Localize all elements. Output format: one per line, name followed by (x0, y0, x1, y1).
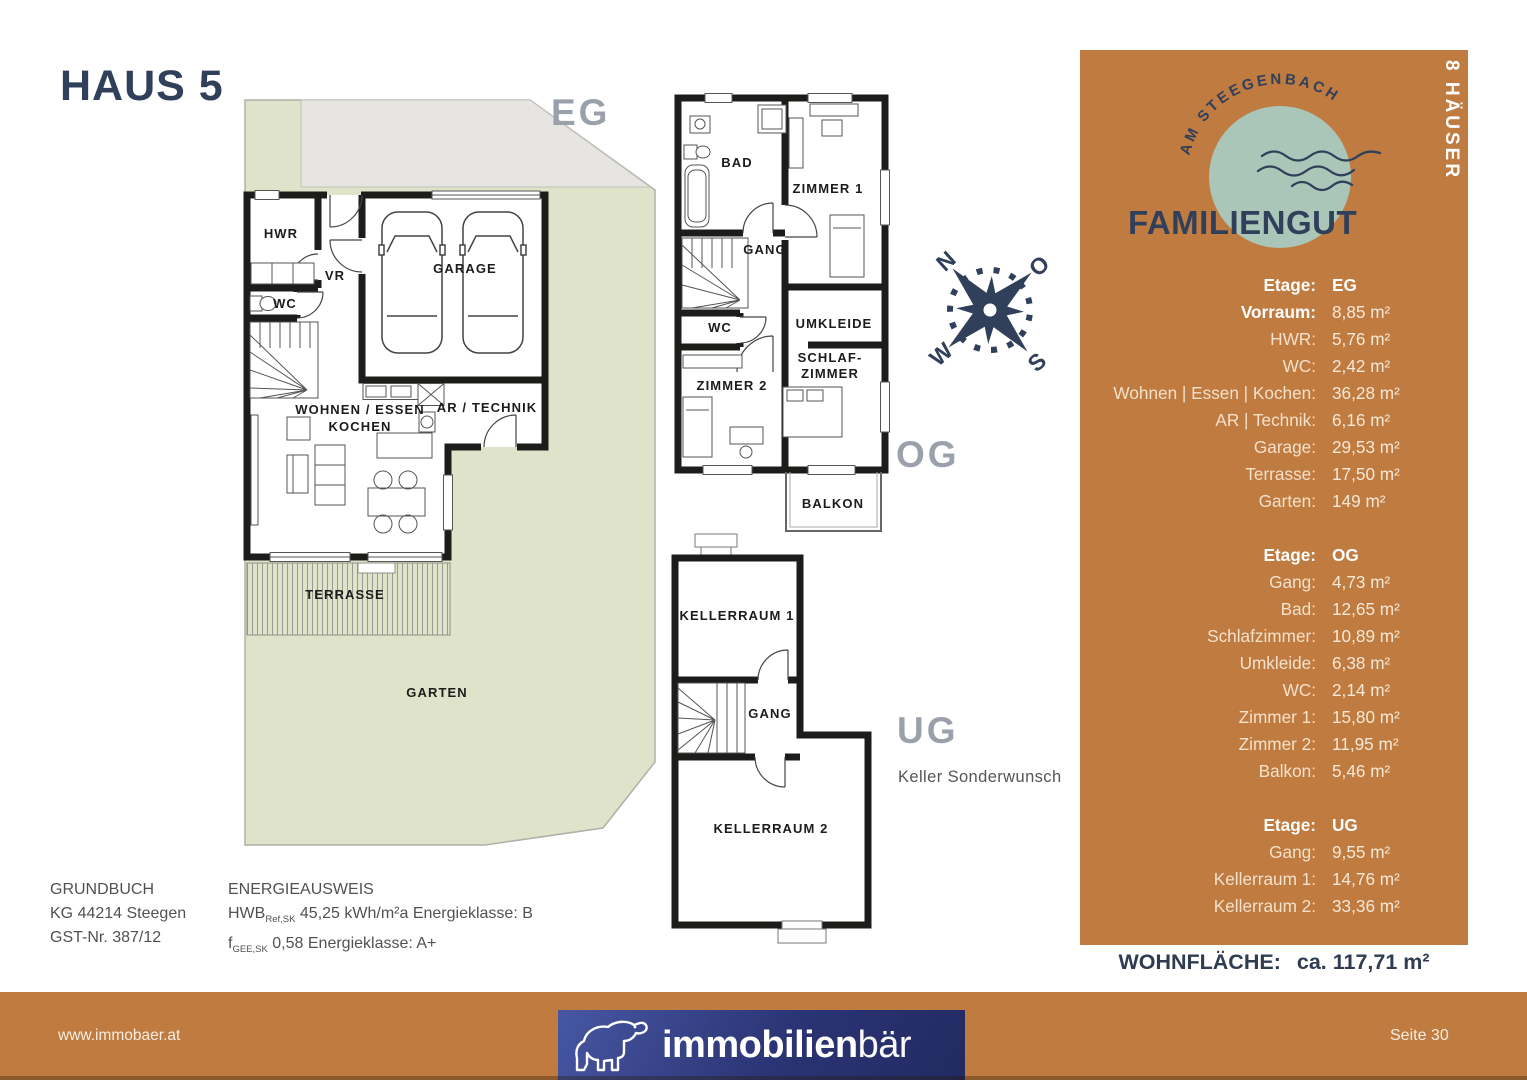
area-value: 5,76 m² (1332, 329, 1390, 350)
area-value: 4,73 m² (1332, 572, 1390, 593)
area-label: Balkon: (1080, 761, 1316, 782)
room-label-zimmer1: ZIMMER 1 (793, 181, 864, 196)
fgee-sub: GEE,SK (232, 944, 267, 955)
hwb-label: HWB (228, 905, 265, 922)
area-label: Bad: (1080, 599, 1316, 620)
immobilienbaer-logo: immobilienbär (558, 1010, 965, 1080)
hwb-sub: Ref,SK (265, 914, 295, 925)
etage-value: EG (1332, 275, 1357, 296)
area-label: Gang: (1080, 572, 1316, 593)
area-value: 36,28 m² (1332, 383, 1400, 404)
grundbuch-line2: GST-Nr. 387/12 (50, 926, 186, 950)
etage-label: Etage: (1080, 545, 1316, 566)
area-label: Garten: (1080, 491, 1316, 512)
etage-value: UG (1332, 815, 1358, 836)
ug-floor-plan: KELLERRAUM 1 GANG KELLERRAUM 2 (670, 530, 890, 950)
room-label-bad: BAD (721, 155, 752, 170)
area-row: Wohnen | Essen | Kochen:36,28 m² (1080, 380, 1468, 407)
area-value: 6,16 m² (1332, 410, 1390, 431)
room-label-schlaf2: ZIMMER (801, 366, 859, 381)
area-row: Zimmer 1:15,80 m² (1080, 704, 1468, 731)
section-eg: Etage: EG Vorraum:8,85 m² HWR:5,76 m² WC… (1080, 272, 1468, 515)
grundbuch-line1: KG 44214 Steegen (50, 902, 186, 926)
area-list: Etage: EG Vorraum:8,85 m² HWR:5,76 m² WC… (1080, 272, 1468, 947)
og-stairs (682, 238, 748, 308)
etage-label: Etage: (1080, 275, 1316, 296)
area-row: Gang:9,55 m² (1080, 839, 1468, 866)
area-row: Zimmer 2:11,95 m² (1080, 731, 1468, 758)
logo-text-light: bär (858, 1024, 911, 1066)
eg-floor-plan: HWR VR WC GARAGE WOHNEN / ESSEN KOCHEN A… (235, 90, 665, 850)
fgee-rest: 0,58 Energieklasse: A+ (272, 935, 436, 952)
area-value: 9,55 m² (1332, 842, 1390, 863)
room-label-schlaf1: SCHLAF- (798, 350, 863, 365)
area-value: 149 m² (1332, 491, 1386, 512)
area-value: 15,80 m² (1332, 707, 1400, 728)
area-label: Vorraum: (1080, 302, 1316, 323)
area-row: Gang:4,73 m² (1080, 569, 1468, 596)
total-area-label: WOHNFLÄCHE: (1118, 950, 1280, 975)
area-value: 10,89 m² (1332, 626, 1400, 647)
area-row: AR | Technik:6,16 m² (1080, 407, 1468, 434)
energie-title: ENERGIEAUSWEIS (228, 878, 533, 902)
area-row: Kellerraum 1:14,76 m² (1080, 866, 1468, 893)
energieausweis-block: ENERGIEAUSWEIS HWBRef,SK 45,25 kWh/m²a E… (228, 878, 533, 962)
logo-text-bold: immobilien (662, 1024, 858, 1066)
room-label-garten: GARTEN (406, 685, 468, 700)
area-label: Zimmer 2: (1080, 734, 1316, 755)
ug-bottom-stub (778, 921, 826, 943)
area-label: Zimmer 1: (1080, 707, 1316, 728)
area-value: 8,85 m² (1332, 302, 1390, 323)
page-number: Seite 30 (1390, 1027, 1449, 1045)
area-value: 33,36 m² (1332, 896, 1400, 917)
hwb-rest: 45,25 kWh/m²a Energieklasse: B (300, 905, 533, 922)
area-row: Umkleide:6,38 m² (1080, 650, 1468, 677)
section-ug: Etage: UG Gang:9,55 m² Kellerraum 1:14,7… (1080, 812, 1468, 920)
room-label-balkon: BALKON (802, 496, 864, 511)
area-value: 6,38 m² (1332, 653, 1390, 674)
area-value: 29,53 m² (1332, 437, 1400, 458)
area-label: WC: (1080, 680, 1316, 701)
area-row: Terrasse:17,50 m² (1080, 461, 1468, 488)
room-label-umkleide: UMKLEIDE (796, 316, 873, 331)
floor-tag-ug: UG (897, 710, 959, 752)
total-area-value: ca. 117,71 m² (1297, 950, 1430, 975)
area-label: Schlafzimmer: (1080, 626, 1316, 647)
website-link[interactable]: www.immobaer.at (58, 1027, 180, 1045)
floor-tag-og: OG (896, 434, 960, 476)
brand-name: FAMILIENGUT (1128, 204, 1357, 241)
eg-stairs (250, 322, 318, 398)
area-value: 2,42 m² (1332, 356, 1390, 377)
room-label-gang-og: GANG (743, 242, 786, 257)
floor-tag-eg: EG (551, 92, 610, 134)
area-row: Garten:149 m² (1080, 488, 1468, 515)
etage-row: Etage: EG (1080, 272, 1468, 299)
section-og: Etage: OG Gang:4,73 m² Bad:12,65 m² Schl… (1080, 542, 1468, 785)
logo-wordmark: immobilienbär (662, 1024, 911, 1067)
area-value: 5,46 m² (1332, 761, 1390, 782)
brand-logo: AM STEEGENBACH FAMILIENGUT (1120, 64, 1420, 254)
room-label-zimmer2: ZIMMER 2 (697, 378, 768, 393)
area-value: 12,65 m² (1332, 599, 1400, 620)
grundbuch-block: GRUNDBUCH KG 44214 Steegen GST-Nr. 387/1… (50, 878, 186, 950)
area-value: 17,50 m² (1332, 464, 1400, 485)
energie-hwb-line: HWBRef,SK 45,25 kWh/m²a Energieklasse: B (228, 902, 533, 932)
page-title: HAUS 5 (60, 62, 224, 111)
area-label: Kellerraum 2: (1080, 896, 1316, 917)
area-label: Umkleide: (1080, 653, 1316, 674)
room-label-garage: GARAGE (433, 261, 497, 276)
area-row: HWR:5,76 m² (1080, 326, 1468, 353)
houses-badge: 8 HÄUSER (1440, 60, 1462, 180)
etage-label: Etage: (1080, 815, 1316, 836)
room-label-gang-ug: GANG (748, 706, 791, 721)
etage-row: Etage: UG (1080, 812, 1468, 839)
area-row: WC:2,14 m² (1080, 677, 1468, 704)
info-panel: 8 HÄUSER AM STEEGENBACH FAMILIENGUT Etag… (1080, 50, 1468, 945)
area-label: HWR: (1080, 329, 1316, 350)
area-row: Schlafzimmer:10,89 m² (1080, 623, 1468, 650)
bear-icon (572, 1016, 654, 1074)
room-label-hwr: HWR (264, 226, 298, 241)
room-label-kochen: KOCHEN (329, 419, 392, 434)
area-value: 2,14 m² (1332, 680, 1390, 701)
total-area-row: WOHNFLÄCHE: ca. 117,71 m² (1080, 950, 1468, 975)
area-value: 11,95 m² (1332, 734, 1399, 755)
grundbuch-title: GRUNDBUCH (50, 878, 186, 902)
room-label-wc-og: WC (708, 320, 732, 335)
area-label: Wohnen | Essen | Kochen: (1080, 383, 1316, 404)
area-row: Vorraum:8,85 m² (1080, 299, 1468, 326)
compass-s: S (1022, 347, 1051, 377)
room-label-vr: VR (325, 268, 345, 283)
area-row: Bad:12,65 m² (1080, 596, 1468, 623)
area-label: Kellerraum 1: (1080, 869, 1316, 890)
bottom-strip (0, 1076, 1527, 1080)
og-floor-plan: BAD ZIMMER 1 GANG WC UMKLEIDE ZIMMER 2 S… (670, 90, 900, 590)
etage-value: OG (1332, 545, 1359, 566)
room-label-wohnen: WOHNEN / ESSEN (295, 402, 425, 417)
area-label: WC: (1080, 356, 1316, 377)
ug-stairs (678, 683, 745, 753)
room-label-kellerraum1: KELLERRAUM 1 (679, 608, 794, 623)
area-label: Gang: (1080, 842, 1316, 863)
area-value: 14,76 m² (1332, 869, 1400, 890)
area-row: Kellerraum 2:33,36 m² (1080, 893, 1468, 920)
footer-bar: www.immobaer.at immobilienbär Seite 30 (0, 992, 1527, 1080)
area-row: Garage:29,53 m² (1080, 434, 1468, 461)
area-label: AR | Technik: (1080, 410, 1316, 431)
area-row: Balkon:5,46 m² (1080, 758, 1468, 785)
area-row: WC:2,42 m² (1080, 353, 1468, 380)
compass-rose-icon: N O S W (905, 222, 1075, 397)
keller-note: Keller Sonderwunsch (898, 768, 1062, 787)
area-label: Garage: (1080, 437, 1316, 458)
room-label-ar-technik: AR / TECHNIK (437, 400, 538, 415)
area-label: Terrasse: (1080, 464, 1316, 485)
energie-fgee-line: fGEE,SK 0,58 Energieklasse: A+ (228, 932, 533, 962)
room-label-kellerraum2: KELLERRAUM 2 (713, 821, 828, 836)
room-label-terrasse: TERRASSE (305, 587, 385, 602)
room-label-wc-eg: WC (273, 296, 297, 311)
etage-row: Etage: OG (1080, 542, 1468, 569)
